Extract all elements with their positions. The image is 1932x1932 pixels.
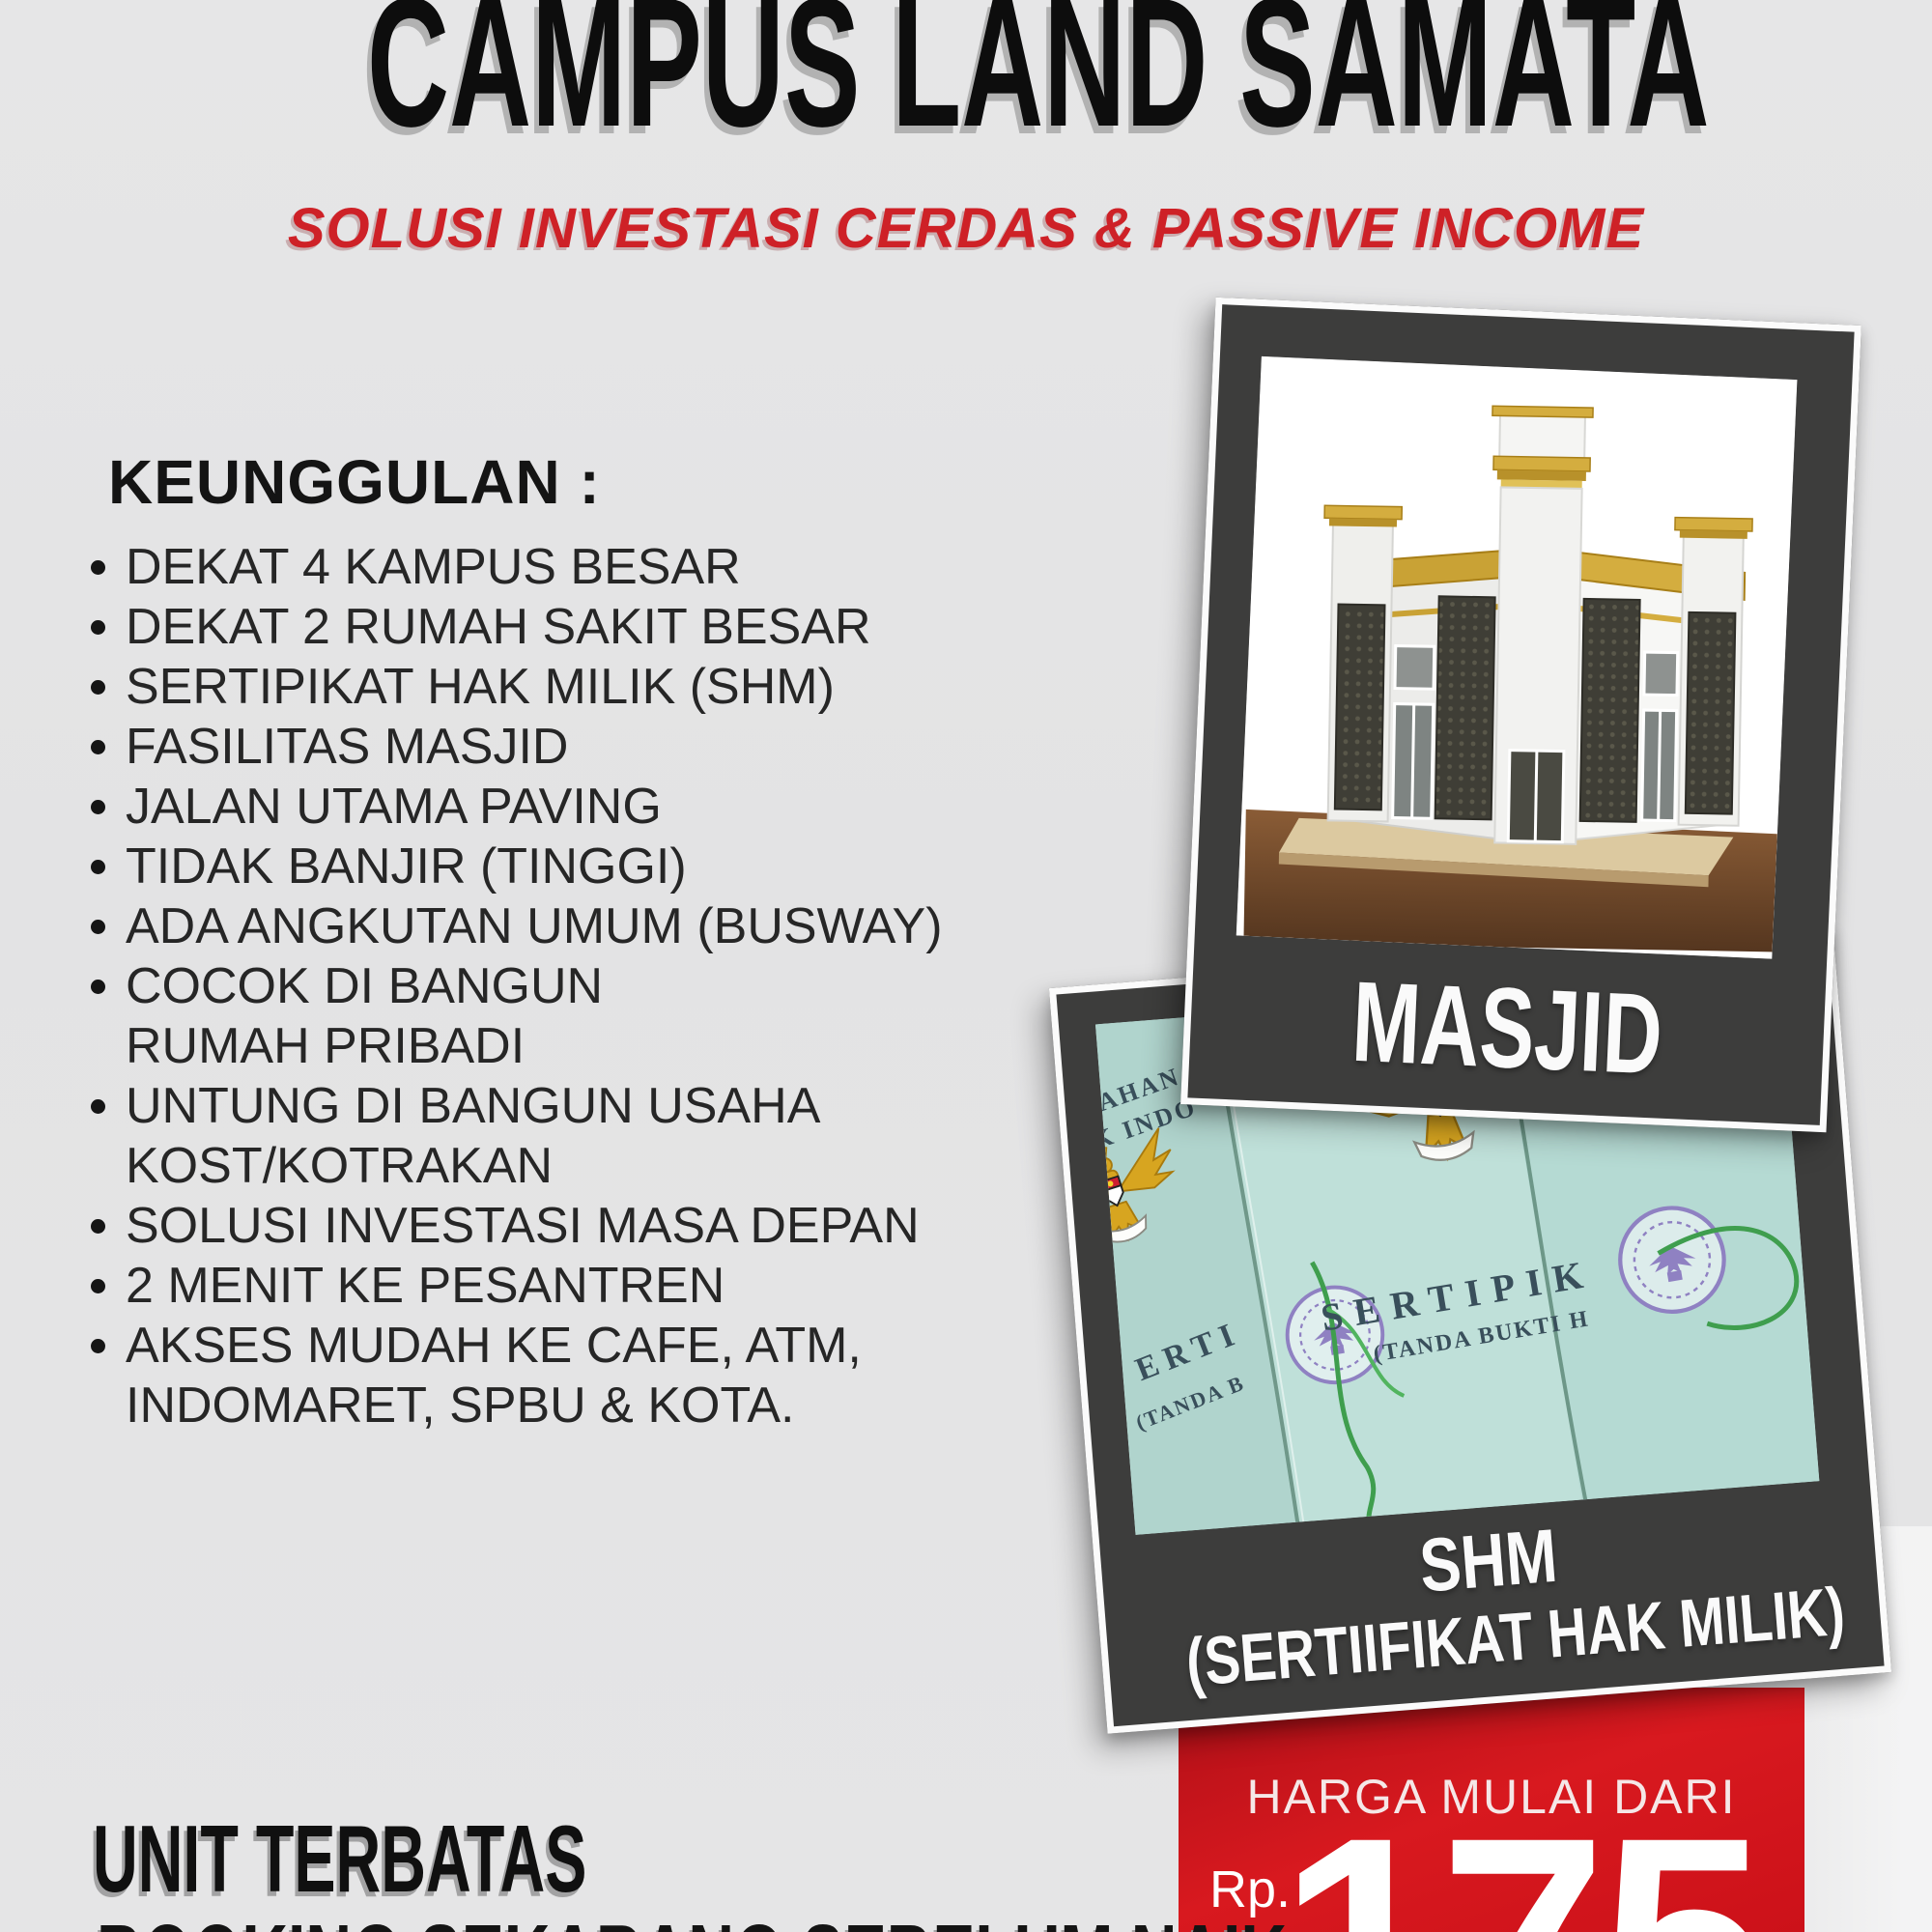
cutoff-bottom-line: BOOKING SEKARANG SEBELUM NAIK bbox=[97, 1904, 1287, 1932]
limited-units-headline: UNIT TERBATAS bbox=[93, 1804, 586, 1914]
benefit-item: ADA ANGKUTAN UMUM (BUSWAY) bbox=[85, 896, 1070, 956]
page-subtitle: SOLUSI INVESTASI CERDAS & PASSIVE INCOME bbox=[0, 196, 1932, 261]
benefit-item: DEKAT 4 KAMPUS BESAR bbox=[85, 537, 1070, 597]
benefit-item: UNTUNG DI BANGUN USAHA KOST/KOTRAKAN bbox=[85, 1076, 1070, 1196]
benefits-list: DEKAT 4 KAMPUS BESARDEKAT 2 RUMAH SAKIT … bbox=[85, 537, 1070, 1435]
benefit-item: JALAN UTAMA PAVING bbox=[85, 777, 1070, 837]
benefit-item: COCOK DI BANGUN RUMAH PRIBADI bbox=[85, 956, 1070, 1076]
price-amount: 175 bbox=[1279, 1793, 1761, 1932]
masjid-photo-card: MASJID bbox=[1180, 298, 1861, 1132]
price-box: HARGA MULAI DARI Rp. 175 bbox=[1179, 1688, 1804, 1932]
masjid-photo bbox=[1236, 356, 1798, 959]
masjid-card-label: MASJID bbox=[1277, 952, 1738, 1103]
benefit-item: DEKAT 2 RUMAH SAKIT BESAR bbox=[85, 597, 1070, 657]
benefit-item: SOLUSI INVESTASI MASA DEPAN bbox=[85, 1196, 1070, 1256]
flyer-page: CAMPUS LAND SAMATA SOLUSI INVESTASI CERD… bbox=[0, 0, 1932, 1932]
benefits-heading: KEUNGGULAN : bbox=[108, 446, 601, 518]
benefit-item: AKSES MUDAH KE CAFE, ATM, INDOMARET, SPB… bbox=[85, 1316, 1070, 1435]
benefit-item: SERTIPIKAT HAK MILIK (SHM) bbox=[85, 657, 1070, 717]
mosque-illustration bbox=[1236, 356, 1798, 959]
benefit-item: TIDAK BANJIR (TINGGI) bbox=[85, 837, 1070, 896]
benefit-item: 2 MENIT KE PESANTREN bbox=[85, 1256, 1070, 1316]
benefit-item: FASILITAS MASJID bbox=[85, 717, 1070, 777]
page-title: CAMPUS LAND SAMATA bbox=[367, 0, 1565, 155]
